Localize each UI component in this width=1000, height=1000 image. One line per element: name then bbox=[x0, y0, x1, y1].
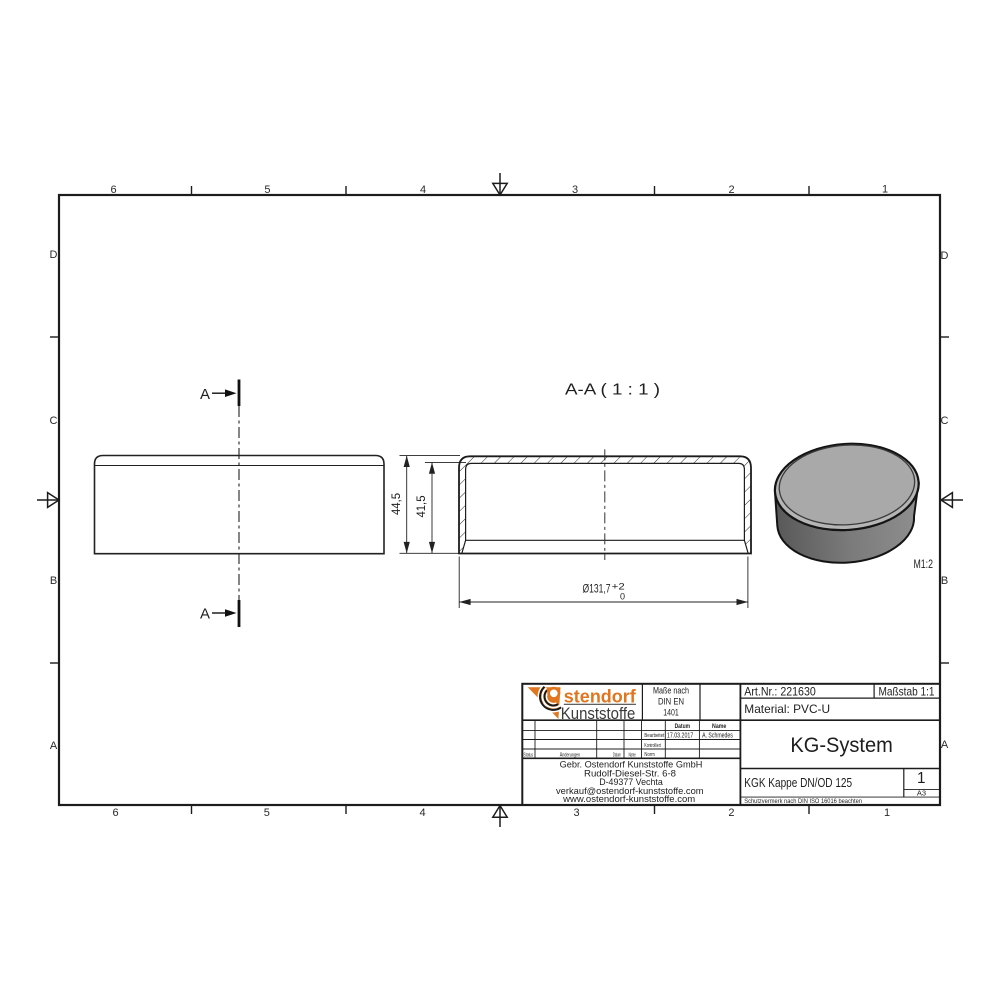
svg-text:17.03.2017: 17.03.2017 bbox=[667, 731, 693, 740]
svg-text:2: 2 bbox=[728, 807, 734, 819]
svg-text:41,5: 41,5 bbox=[414, 495, 428, 517]
svg-text:Datum: Datum bbox=[613, 753, 621, 759]
svg-text:Schutzvermerk nach DIN ISO 160: Schutzvermerk nach DIN ISO 16016 beachte… bbox=[744, 798, 862, 805]
svg-text:A: A bbox=[50, 740, 58, 752]
svg-text:A3: A3 bbox=[917, 788, 926, 797]
svg-text:Kunststoffe: Kunststoffe bbox=[561, 705, 636, 723]
svg-text:Bearbeitet: Bearbeitet bbox=[644, 733, 664, 739]
svg-text:D: D bbox=[941, 250, 949, 262]
svg-text:www.ostendorf-kunststoffe.com: www.ostendorf-kunststoffe.com bbox=[562, 794, 695, 804]
svg-text:1: 1 bbox=[884, 807, 890, 819]
svg-text:44,5: 44,5 bbox=[389, 493, 403, 515]
svg-text:Norm: Norm bbox=[644, 752, 655, 758]
svg-text:KG-System: KG-System bbox=[790, 733, 893, 757]
svg-text:0: 0 bbox=[620, 592, 625, 602]
svg-text:D: D bbox=[50, 249, 58, 261]
svg-text:C: C bbox=[50, 415, 58, 427]
svg-text:A: A bbox=[941, 739, 949, 751]
svg-text:B: B bbox=[941, 575, 948, 587]
svg-text:Art.Nr.: 221630: Art.Nr.: 221630 bbox=[744, 684, 816, 698]
svg-text:4: 4 bbox=[420, 807, 426, 819]
svg-text:KGK Kappe DN/OD 125: KGK Kappe DN/OD 125 bbox=[744, 776, 852, 790]
svg-text:2: 2 bbox=[728, 184, 734, 196]
svg-text:Änderungen: Änderungen bbox=[560, 752, 581, 759]
svg-text:M1:2: M1:2 bbox=[914, 557, 934, 571]
svg-text:4: 4 bbox=[420, 184, 426, 196]
svg-text:Material: PVC-U: Material: PVC-U bbox=[744, 702, 830, 716]
svg-text:3: 3 bbox=[572, 184, 578, 196]
svg-text:Name: Name bbox=[629, 753, 636, 759]
svg-text:Name: Name bbox=[712, 723, 726, 730]
svg-text:5: 5 bbox=[264, 184, 270, 196]
svg-text:Maßstab 1:1: Maßstab 1:1 bbox=[879, 684, 935, 698]
svg-text:Status: Status bbox=[524, 753, 534, 759]
svg-text:DIN EN: DIN EN bbox=[658, 697, 684, 707]
svg-text:Kontrolliert: Kontrolliert bbox=[644, 743, 661, 749]
svg-text:stendorf: stendorf bbox=[564, 687, 637, 707]
svg-text:B: B bbox=[50, 575, 57, 587]
svg-text:+2: +2 bbox=[612, 582, 625, 592]
svg-text:1401: 1401 bbox=[663, 708, 679, 718]
svg-text:C: C bbox=[941, 415, 949, 427]
svg-text:6: 6 bbox=[110, 184, 116, 196]
svg-text:Datum: Datum bbox=[675, 723, 690, 730]
svg-text:A: A bbox=[200, 606, 210, 623]
svg-text:6: 6 bbox=[112, 807, 118, 819]
svg-text:Maße nach: Maße nach bbox=[653, 686, 689, 696]
svg-text:1: 1 bbox=[882, 184, 888, 196]
svg-text:5: 5 bbox=[264, 807, 270, 819]
svg-text:Ø131,7: Ø131,7 bbox=[583, 582, 611, 596]
svg-text:3: 3 bbox=[573, 807, 579, 819]
svg-text:A. Schmedes: A. Schmedes bbox=[702, 731, 733, 740]
svg-text:A: A bbox=[200, 386, 210, 403]
svg-text:A-A ( 1 : 1 ): A-A ( 1 : 1 ) bbox=[565, 382, 660, 399]
svg-text:1: 1 bbox=[917, 770, 926, 787]
